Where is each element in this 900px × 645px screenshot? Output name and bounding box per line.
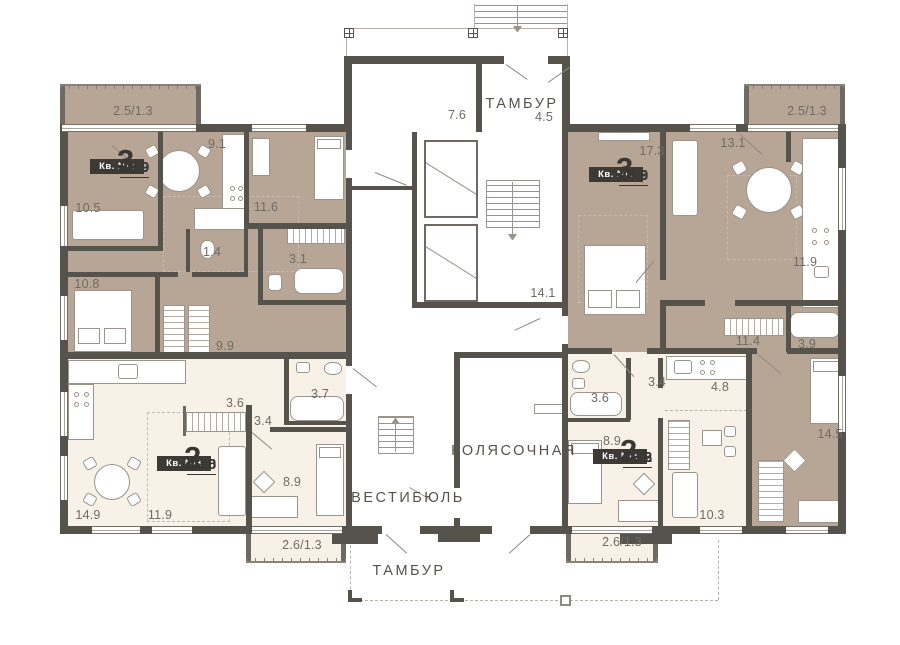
wall [352, 186, 412, 190]
door-opening [346, 150, 352, 178]
pillow [588, 290, 612, 308]
total-area: 74.6 [619, 168, 648, 185]
common-area-label: ТАМБУР [372, 563, 445, 579]
room-area-label: 11.4 [736, 334, 760, 348]
wall [158, 132, 163, 248]
stove-burner-icon [824, 228, 829, 233]
desk [618, 500, 662, 522]
wall [476, 64, 482, 132]
window [252, 526, 342, 534]
room-area-label: 11.9 [148, 508, 172, 522]
wall [412, 302, 568, 308]
stove-burner-icon [700, 360, 705, 365]
room-area-label: 11.6 [254, 200, 278, 214]
porch-pier [438, 532, 480, 542]
window [60, 296, 68, 340]
wall [258, 300, 347, 305]
door-swing [506, 64, 528, 80]
room-area-label: 10.8 [74, 277, 99, 291]
porch-column-icon [558, 28, 568, 38]
wall [566, 418, 630, 422]
chair [724, 446, 736, 457]
window [838, 376, 846, 432]
room-area-label: 3.9 [798, 337, 816, 351]
wall [246, 405, 252, 526]
room-area-label: 3.4 [648, 375, 666, 389]
stove-burner-icon [74, 392, 79, 397]
porch-dashed [718, 540, 719, 600]
desk [250, 496, 298, 518]
toilet [324, 362, 342, 375]
wall [746, 354, 752, 526]
pillow [319, 447, 341, 458]
window [838, 168, 846, 230]
stove-burner-icon [84, 392, 89, 397]
wall [566, 348, 612, 354]
stove-burner-icon [74, 402, 79, 407]
window [62, 124, 196, 132]
tv-stand [598, 132, 650, 141]
pillow [813, 361, 839, 372]
pillow [104, 328, 126, 344]
window [60, 456, 68, 500]
room-area-label: 10.3 [699, 508, 724, 522]
balcony-wall [60, 84, 65, 128]
bathtub [790, 312, 840, 338]
sink [674, 360, 692, 374]
wall [660, 303, 666, 352]
room-area-label: 9.1 [208, 137, 226, 151]
balcony-wall [840, 84, 845, 128]
balcony-wall [196, 84, 201, 128]
wall [60, 352, 352, 359]
total-area: 58.9 [120, 160, 149, 177]
wall [183, 406, 186, 436]
elevator-shaft [424, 140, 478, 218]
room-area-label: 2.5/1.3 [787, 104, 827, 118]
sofa [672, 472, 698, 518]
stove-burner-icon [812, 228, 817, 233]
room-area-label: 3.4 [254, 414, 272, 428]
desk [798, 500, 842, 523]
porch-column-icon [450, 590, 464, 602]
wall [412, 132, 417, 304]
room-area-label: 4.8 [711, 380, 729, 394]
pillow [616, 290, 640, 308]
wall [66, 246, 163, 251]
dining-table [158, 150, 200, 192]
room-area-label: 4.5 [535, 110, 553, 124]
stove-burner-icon [230, 196, 235, 201]
window [60, 206, 68, 246]
wall [258, 229, 263, 300]
common-area-label: КОЛЯСОЧНАЯ [451, 443, 577, 459]
table [702, 430, 722, 446]
room-area-label: 2.6/1.3 [602, 535, 642, 549]
window [786, 526, 828, 534]
door-opening [504, 56, 548, 64]
door-swing [386, 534, 407, 553]
stair-arrowhead-icon [508, 234, 517, 240]
wardrobe [668, 420, 690, 470]
balcony-wall [744, 84, 749, 128]
wall [186, 229, 190, 272]
wall [192, 272, 248, 277]
total-area: 33.6 [623, 450, 652, 467]
wall [454, 352, 568, 358]
sofa [218, 446, 246, 516]
wall [270, 427, 347, 432]
dining-table [94, 464, 130, 500]
desk [252, 138, 270, 176]
room-area-label: 3.7 [311, 387, 329, 401]
floor-plan: 2.5/1.39.110.511.61.43.110.89.97.64.514.… [0, 0, 900, 645]
window [92, 526, 140, 534]
balcony-railing [246, 558, 346, 563]
wall [660, 300, 705, 306]
wall [284, 358, 289, 423]
sofa [672, 140, 698, 216]
sink [268, 274, 282, 291]
zone-dashed [665, 410, 747, 411]
window [700, 526, 742, 534]
common-area-label: ВЕСТИБЮЛЬ [351, 490, 465, 506]
door-opening [562, 316, 568, 344]
wall [155, 277, 160, 356]
room-area-label: 3.6 [591, 391, 609, 405]
stove-burner-icon [238, 196, 243, 201]
room-area-label: 11.9 [793, 255, 817, 269]
door-opening [382, 526, 420, 534]
elevator-shaft [424, 224, 478, 302]
wall [658, 418, 663, 526]
room-area-label: 14.9 [75, 508, 100, 522]
room-area-label: 17.3 [639, 144, 664, 158]
porch-column-icon [344, 28, 354, 38]
stove-burner-icon [700, 370, 705, 375]
toilet [572, 360, 590, 373]
wardrobe [188, 305, 210, 353]
wall [786, 132, 791, 162]
kitchen-counter [802, 138, 842, 308]
wall [786, 303, 791, 352]
wall [346, 132, 352, 526]
window [152, 526, 192, 534]
dining-table [746, 167, 792, 213]
stove-burner-icon [710, 370, 715, 375]
sink [572, 378, 585, 389]
room-area-label: 10.5 [75, 201, 100, 215]
chair [724, 426, 736, 437]
room-area-label: 3.1 [289, 252, 307, 266]
wardrobe [758, 460, 784, 522]
room-area-label: 14.1 [530, 286, 555, 300]
window [252, 124, 306, 132]
bathtub [294, 268, 344, 294]
room-area-label: 7.6 [448, 108, 466, 122]
stove-burner-icon [824, 240, 829, 245]
wall [244, 227, 248, 272]
porch-column-icon [468, 28, 478, 38]
wardrobe [186, 412, 246, 432]
wall [647, 348, 757, 354]
stove-burner-icon [230, 186, 235, 191]
balcony-railing [744, 84, 845, 89]
room-area-label: 13.1 [720, 136, 745, 150]
stove-burner-icon [710, 360, 715, 365]
steps-arrowhead-icon [513, 26, 522, 32]
room-area-label: 3.6 [226, 396, 244, 410]
vestibule-arrowhead-icon [391, 418, 400, 424]
balcony-railing [60, 84, 201, 89]
total-area: 49.0 [187, 457, 216, 474]
window [60, 392, 68, 436]
room-area-label: 9.9 [216, 339, 234, 353]
pillow [78, 328, 100, 344]
door-swing [375, 172, 407, 186]
kitchen-counter [194, 208, 246, 230]
common-area-label: ТАМБУР [485, 96, 558, 112]
porch-dashed [350, 600, 718, 601]
vestibule-arrow-icon [395, 420, 396, 452]
kitchen-counter [68, 384, 94, 440]
wall [344, 56, 352, 132]
staircase [486, 180, 540, 228]
porch-column-icon [560, 595, 571, 606]
door-opening [492, 526, 530, 534]
wall [244, 132, 249, 227]
bench [534, 404, 564, 414]
room-area-label: 1.4 [203, 245, 221, 259]
wall [284, 421, 347, 425]
room-area-label: 8.9 [283, 475, 301, 489]
sink [118, 364, 138, 379]
window [748, 124, 838, 132]
balcony-railing [566, 558, 658, 563]
wardrobe [163, 305, 185, 353]
room-area-label: 2.6/1.3 [282, 538, 322, 552]
stair-arrow-icon [512, 182, 513, 238]
window [572, 526, 652, 534]
stove-burner-icon [84, 402, 89, 407]
pillow [317, 139, 341, 149]
porch-column-icon [348, 590, 362, 602]
door-opening [346, 366, 352, 394]
window [690, 124, 736, 132]
door-swing [353, 368, 377, 387]
stove-burner-icon [812, 240, 817, 245]
door-swing [509, 534, 530, 553]
room-area-label: 14.5 [817, 427, 842, 441]
sink [296, 362, 310, 373]
room-area-label: 2.5/1.3 [113, 104, 153, 118]
stove-burner-icon [238, 186, 243, 191]
door-swing [514, 318, 540, 331]
room-area-label: 8.9 [603, 434, 621, 448]
